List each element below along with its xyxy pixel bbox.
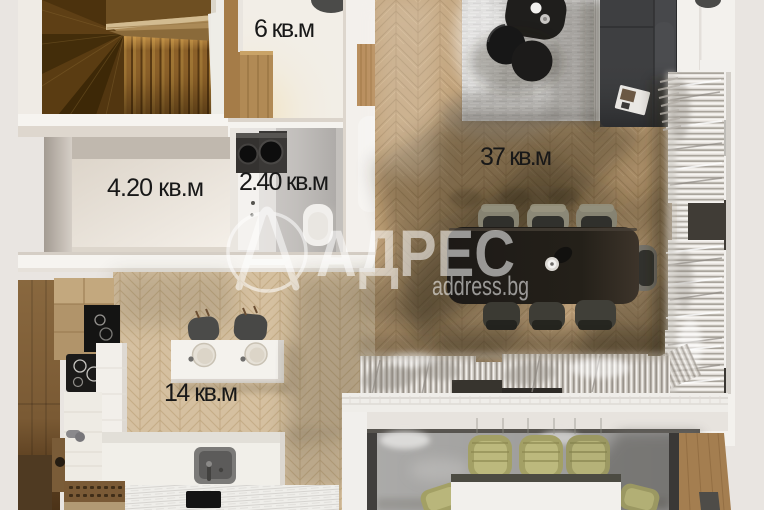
svg-text:14 кв.м: 14 кв.м (164, 379, 238, 407)
svg-text:4.20 кв.м: 4.20 кв.м (107, 174, 204, 202)
svg-text:6 кв.м: 6 кв.м (254, 15, 315, 43)
svg-text:address.bg: address.bg (432, 271, 529, 301)
svg-text:37 кв.м: 37 кв.м (480, 143, 552, 171)
svg-text:2.40 кв.м: 2.40 кв.м (239, 168, 329, 196)
